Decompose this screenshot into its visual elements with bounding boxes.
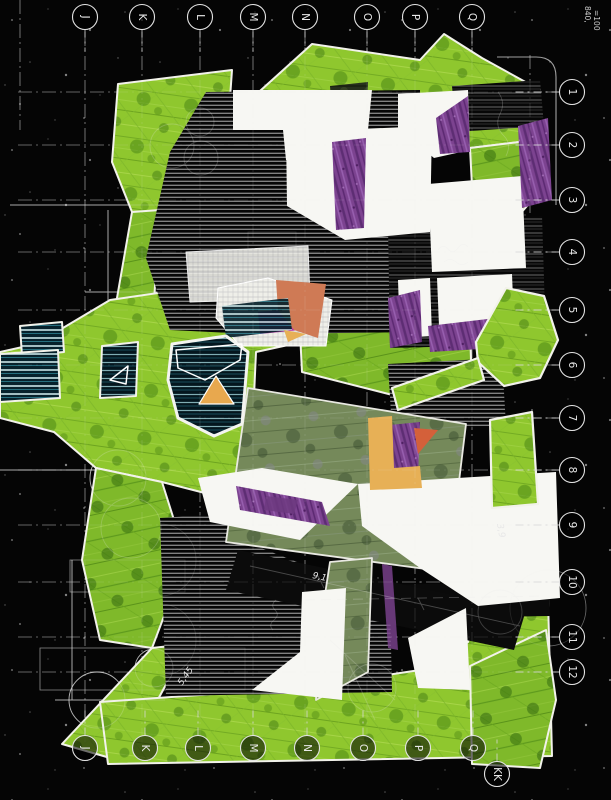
collage-canvas: JKLMNOPQ123456789101112JKLMNOPQKK 840,=1… (0, 0, 611, 800)
grid-bubble-label: J (79, 745, 91, 749)
grid-bubble-label: L (192, 745, 204, 751)
corner-note: 840, (583, 6, 592, 23)
teal-window (100, 342, 138, 398)
grid-bubble-label: N (299, 13, 311, 21)
grid-bubble-label: O (357, 744, 369, 752)
grid-bubble-label: M (247, 743, 259, 752)
grid-bubble-label: 9 (566, 522, 578, 529)
grid-bubble-label: 7 (566, 415, 578, 422)
corner-note: =100 (592, 10, 601, 31)
grid-bubble-label: 2 (566, 142, 578, 149)
grid-bubble-label: M (247, 12, 259, 21)
grid-bubble-label: P (409, 14, 421, 20)
grid-bubble-label: 3 (566, 197, 578, 204)
grid-bubble-label: Q (466, 13, 478, 21)
grid-bubble-label: 11 (566, 630, 578, 643)
grid-bubble-label: Q (467, 744, 479, 752)
grid-bubble-label: O (361, 13, 373, 21)
grid-bubble-label: K (136, 14, 148, 22)
grid-bubble-label: 5 (566, 307, 578, 314)
grid-bubble-label: 6 (566, 362, 578, 369)
grid-bubble-label: 4 (566, 249, 578, 256)
grid-bubble-label: 12 (566, 665, 578, 678)
grid-bubble-label: KK (491, 767, 503, 782)
grid-bubble-label: L (194, 14, 206, 20)
grid-bubble-label: 1 (566, 89, 578, 96)
green-framed-rect (490, 412, 538, 508)
teal-block-left-b (0, 350, 60, 402)
grid-bubble-label: J (79, 14, 91, 18)
grid-bubble-label: P (412, 745, 424, 751)
grid-bubble-label: N (301, 744, 313, 752)
grid-bubble-label: K (139, 745, 151, 753)
architectural-collage: JKLMNOPQ123456789101112JKLMNOPQKK 840,=1… (0, 0, 611, 800)
grid-bubble-label: 8 (566, 467, 578, 474)
grid-bubble-label: 10 (566, 575, 578, 588)
